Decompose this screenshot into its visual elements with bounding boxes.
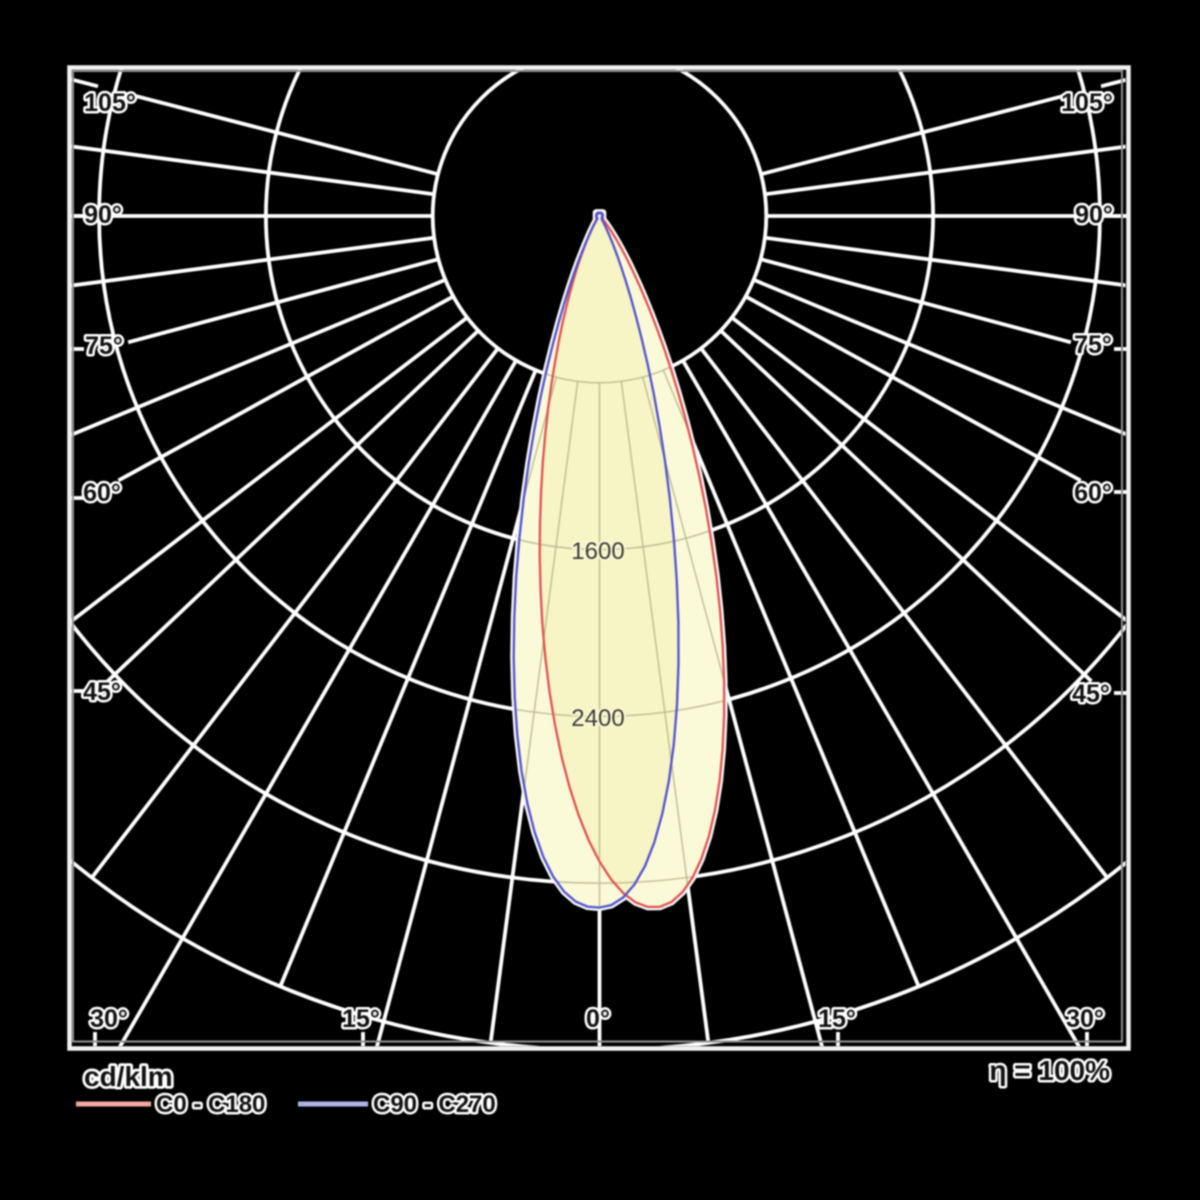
svg-text:η = 100%: η = 100% [989, 1055, 1110, 1086]
svg-text:C0 - C180: C0 - C180 [156, 1091, 265, 1118]
svg-text:15°: 15° [342, 1005, 380, 1033]
svg-text:105°: 105° [84, 89, 136, 117]
svg-text:105°: 105° [1061, 89, 1113, 117]
svg-text:90°: 90° [84, 201, 122, 229]
svg-text:1600: 1600 [571, 538, 624, 565]
svg-text:0°: 0° [586, 1005, 610, 1033]
svg-text:C90 - C270: C90 - C270 [373, 1091, 496, 1118]
svg-text:30°: 30° [1066, 1005, 1104, 1033]
svg-text:45°: 45° [83, 678, 121, 706]
svg-text:30°: 30° [90, 1005, 128, 1033]
svg-text:15°: 15° [818, 1005, 856, 1033]
svg-text:60°: 60° [1074, 479, 1112, 507]
svg-text:75°: 75° [1074, 331, 1112, 359]
svg-text:90°: 90° [1075, 201, 1113, 229]
svg-text:45°: 45° [1072, 680, 1110, 708]
svg-text:75°: 75° [85, 332, 123, 360]
svg-text:cd/klm: cd/klm [84, 1061, 173, 1092]
svg-text:2400: 2400 [571, 705, 624, 732]
svg-text:60°: 60° [83, 479, 121, 507]
